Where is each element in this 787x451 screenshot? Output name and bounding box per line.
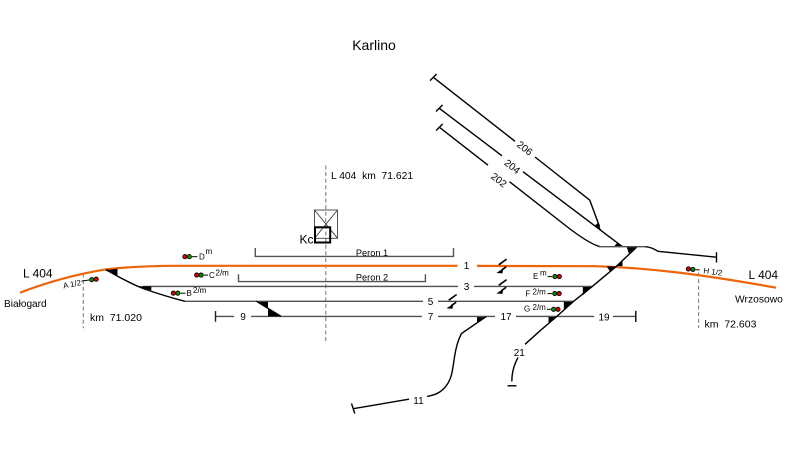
- svg-text:5: 5: [428, 297, 434, 308]
- svg-text:1: 1: [464, 261, 470, 272]
- svg-text:Karlino: Karlino: [352, 37, 396, 53]
- svg-text:2/m: 2/m: [193, 286, 207, 295]
- svg-text:Kc: Kc: [299, 233, 313, 247]
- svg-text:m: m: [540, 269, 547, 278]
- svg-text:C: C: [209, 271, 215, 280]
- svg-text:E: E: [533, 272, 538, 281]
- svg-text:D: D: [199, 252, 205, 261]
- svg-text:L 404 km 71.621: L 404 km 71.621: [331, 171, 413, 182]
- svg-text:17: 17: [500, 312, 512, 323]
- svg-text:21: 21: [514, 348, 526, 359]
- svg-text:11: 11: [413, 396, 424, 407]
- svg-text:19: 19: [598, 313, 610, 324]
- svg-text:9: 9: [240, 312, 246, 323]
- svg-text:7: 7: [428, 312, 434, 323]
- svg-text:F: F: [526, 289, 531, 298]
- svg-text:3: 3: [464, 282, 470, 293]
- svg-text:Peron 2: Peron 2: [356, 273, 388, 283]
- svg-text:L 404: L 404: [749, 268, 779, 282]
- svg-text:2/m: 2/m: [533, 303, 547, 312]
- svg-text:km 72.603: km 72.603: [705, 319, 757, 331]
- svg-text:2/m: 2/m: [533, 288, 547, 297]
- svg-text:km 71.020: km 71.020: [90, 312, 142, 324]
- svg-text:Wrzosowo: Wrzosowo: [735, 295, 783, 306]
- svg-text:Białogard: Białogard: [4, 299, 47, 310]
- svg-text:Peron 1: Peron 1: [356, 248, 388, 258]
- svg-text:2/m: 2/m: [216, 269, 230, 278]
- svg-text:G: G: [524, 305, 530, 314]
- svg-text:B: B: [187, 289, 192, 298]
- svg-text:m: m: [206, 247, 213, 256]
- svg-text:L 404: L 404: [23, 267, 53, 281]
